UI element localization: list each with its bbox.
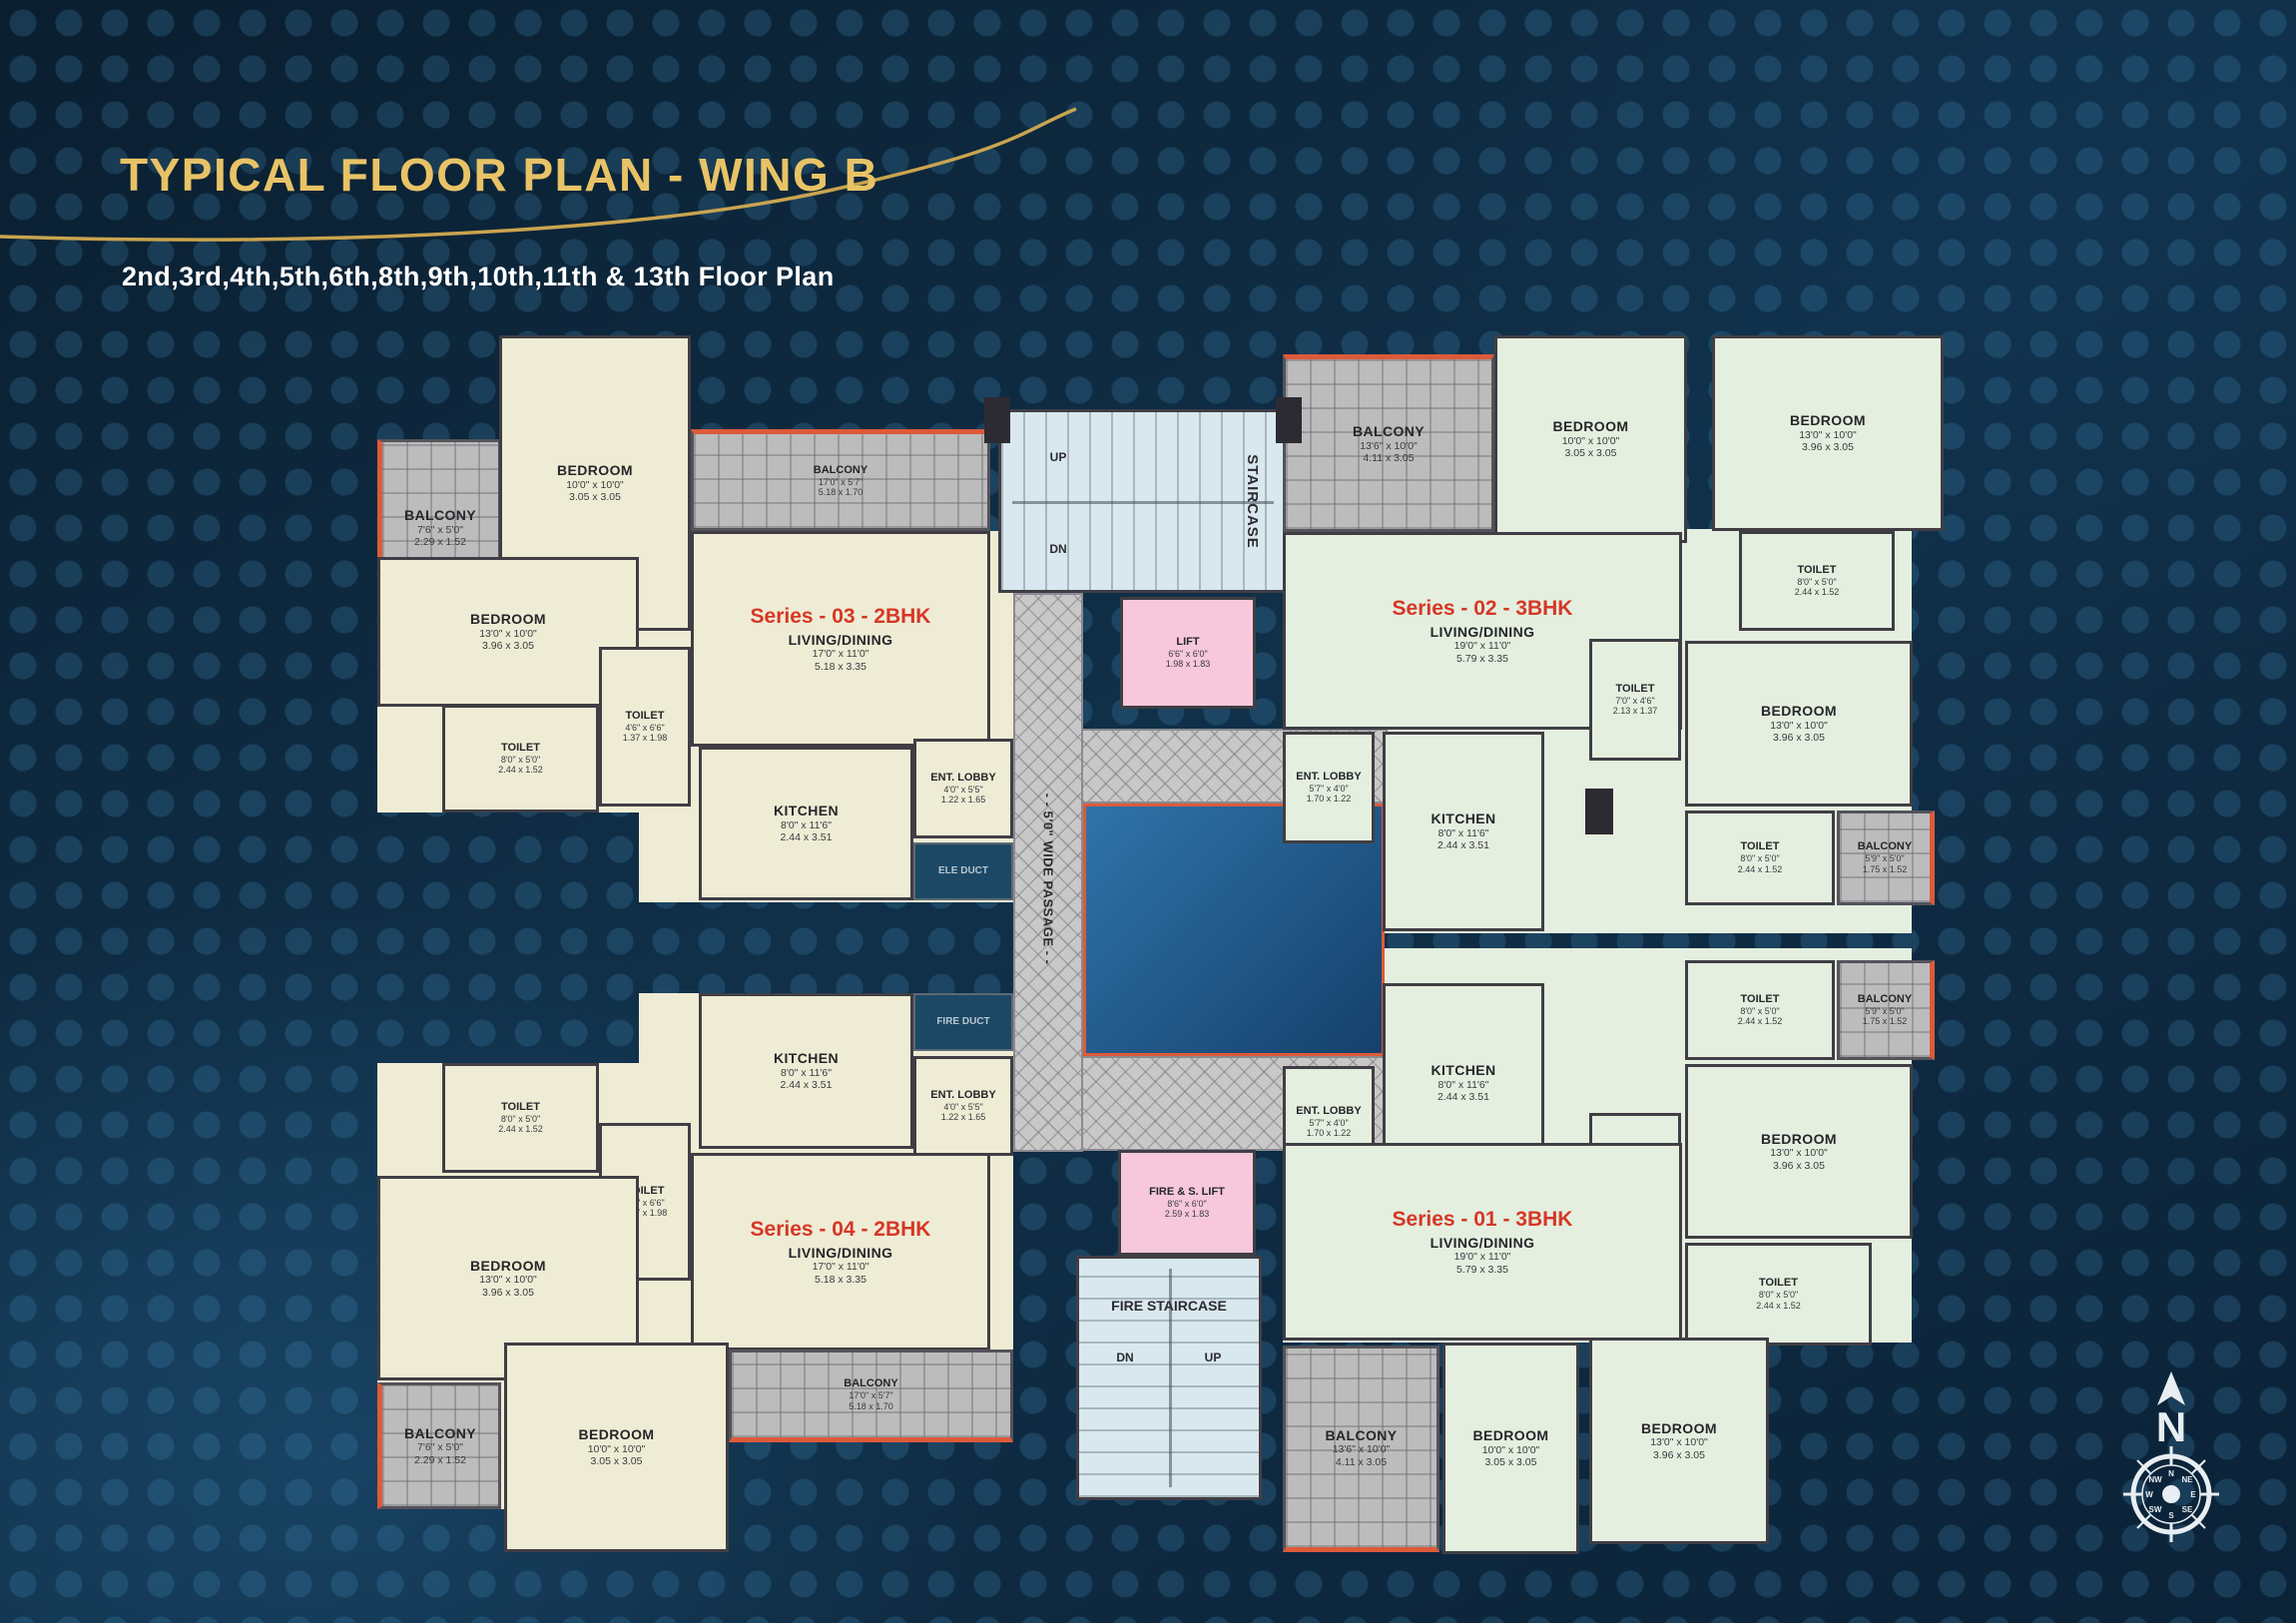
s2-toilet-right: TOILET8'0" x 5'0"2.44 x 1.52 [1739,531,1895,631]
s2-bedroom-b: BEDROOM13'0" x 10'0"3.96 x 3.05 [1712,335,1944,531]
s1-bedroom-right: BEDROOM13'0" x 10'0"3.96 x 3.05 [1685,1064,1913,1239]
ele-duct: ELE DUCT [913,842,1013,900]
svg-text:E: E [2190,1490,2196,1499]
s1-balcony-bottom: BALCONY13'6" x 10'0"4.11 x 3.05 [1283,1346,1439,1552]
svg-text:SW: SW [2149,1505,2162,1514]
floor-plan-page: TYPICAL FLOOR PLAN - WING B 2nd,3rd,4th,… [0,0,2296,1623]
s1-bedroom-bottom-b: BEDROOM13'0" x 10'0"3.96 x 3.05 [1589,1338,1769,1544]
s4-kitchen: KITCHEN8'0" x 11'6"2.44 x 3.51 [699,993,913,1149]
s2-balcony-top: BALCONY13'6" x 10'0"4.11 x 3.05 [1283,354,1494,532]
s4-living-dining: Series - 04 - 2BHKLIVING/DINING17'0" x 1… [691,1153,990,1351]
s1-living-dining: Series - 01 - 3BHKLIVING/DINING19'0" x 1… [1283,1143,1682,1341]
fire-staircase-dn-label: DN [1103,1348,1147,1367]
s2-bedroom-c: BEDROOM13'0" x 10'0"3.96 x 3.05 [1685,641,1913,807]
fire-staircase-up-label: UP [1191,1348,1235,1367]
staircase-label: STAIRCASE [1224,415,1280,587]
svg-text:NE: NE [2181,1475,2193,1484]
svg-text:N: N [2168,1469,2174,1478]
passage-label: - - 5'0" WIDE PASSAGE - - [1006,699,1090,1058]
s3-living-dining: Series - 03 - 2BHKLIVING/DINING17'0" x 1… [691,531,990,747]
svg-text:W: W [2145,1490,2153,1499]
s3-kitchen: KITCHEN8'0" x 11'6"2.44 x 3.51 [699,747,913,900]
svg-text:NW: NW [2148,1475,2162,1484]
column-1 [984,397,1010,443]
s4-ent-lobby: ENT. LOBBY4'0" x 5'5"1.22 x 1.65 [913,1056,1013,1156]
s4-balcony-left: BALCONY7'6" x 5'0"2.29 x 1.52 [377,1382,501,1509]
svg-text:S: S [2168,1511,2174,1520]
fire-service-lift: FIRE & S. LIFT8'6" x 6'0"2.59 x 1.83 [1118,1150,1256,1256]
s2-balcony-small: BALCONY5'9" x 5'0"1.75 x 1.52 [1837,811,1935,905]
s3-balcony-top: BALCONY17'0" x 5'7"5.18 x 1.70 [691,429,990,531]
s2-bedroom-a: BEDROOM10'0" x 10'0"3.05 x 3.05 [1494,335,1687,543]
page-subtitle: 2nd,3rd,4th,5th,6th,8th,9th,10th,11th & … [122,262,835,292]
s4-balcony-bottom: BALCONY17'0" x 5'7"5.18 x 1.70 [729,1350,1013,1442]
s2-kitchen: KITCHEN8'0" x 11'6"2.44 x 3.51 [1383,732,1544,931]
s1-toilet-bottom: TOILET8'0" x 5'0"2.44 x 1.52 [1685,1243,1872,1346]
column-3 [1585,789,1613,834]
lift: LIFT6'6" x 6'0"1.98 x 1.83 [1120,597,1256,709]
s3-ent-lobby: ENT. LOBBY4'0" x 5'5"1.22 x 1.65 [913,739,1013,838]
fire-duct: FIRE DUCT [913,993,1013,1051]
s1-balcony-small: BALCONY5'9" x 5'0"1.75 x 1.52 [1837,960,1935,1060]
svg-text:SE: SE [2182,1505,2193,1514]
s1-toilet-top: TOILET8'0" x 5'0"2.44 x 1.52 [1685,960,1835,1060]
staircase-up-label: UP [1036,447,1080,467]
fire-staircase-label: FIRE STAIRCASE [1098,1281,1240,1331]
s2-toilet-mid: TOILET8'0" x 5'0"2.44 x 1.52 [1685,811,1835,905]
s3-toilet-small: TOILET4'6" x 6'6"1.37 x 1.98 [599,647,691,807]
s2-toilet-small: TOILET7'0" x 4'6"2.13 x 1.37 [1589,639,1681,761]
s1-bedroom-bottom-a: BEDROOM10'0" x 10'0"3.05 x 3.05 [1442,1343,1579,1554]
compass-north-label: N [2156,1403,2186,1450]
s4-toilet-top: TOILET8'0" x 5'0"2.44 x 1.52 [442,1063,599,1173]
page-title: TYPICAL FLOOR PLAN - WING B [120,148,878,202]
s3-toilet-left: TOILET8'0" x 5'0"2.44 x 1.52 [442,705,599,812]
s4-bedroom-bottom: BEDROOM10'0" x 10'0"3.05 x 3.05 [504,1343,729,1552]
staircase-dn-label: DN [1036,539,1080,559]
compass-icon: N N NE E SE S SW W NW [2111,1369,2231,1549]
s2-ent-lobby: ENT. LOBBY5'7" x 4'0"1.70 x 1.22 [1283,732,1375,843]
